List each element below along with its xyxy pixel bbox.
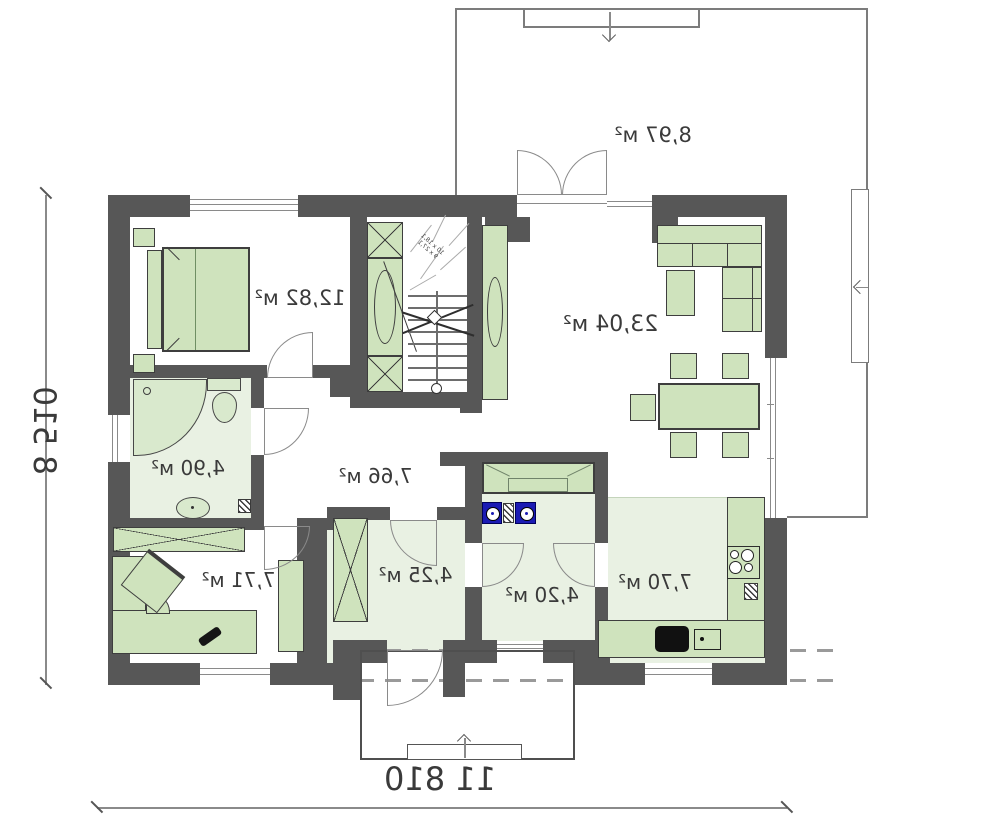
glazing-line [190, 199, 298, 200]
glazing-line [775, 358, 776, 518]
room-label-bathroom: 4,90 м² [138, 456, 238, 480]
room-label-vestibule: 4,25 м² [363, 563, 468, 587]
stair-step [408, 307, 467, 309]
wall-pier-stair [460, 392, 482, 413]
wall-west-upper [108, 195, 130, 415]
toilet-tank [207, 378, 241, 391]
bed-blanket-line [195, 249, 196, 350]
wall-south-3 [575, 663, 645, 685]
room-label-hallway: 7,66 м² [323, 464, 428, 488]
sink-tap-dot [700, 637, 704, 641]
sofa-back-line [752, 268, 753, 331]
glazing-line [200, 668, 270, 669]
glazing-tick [767, 458, 774, 459]
glazing-tick [767, 404, 774, 405]
dining-chair [722, 353, 749, 379]
dim-line-bottom [97, 807, 787, 809]
bed-headboard [147, 250, 162, 349]
wall-pier-bedroom-door [330, 378, 350, 397]
office-wardrobe [113, 527, 245, 552]
wall-south-4 [712, 663, 787, 685]
terrace-edge-left [455, 8, 457, 195]
room-label-living: 23,04 м² [548, 312, 673, 337]
closet-x-top [367, 222, 403, 258]
stair-step [408, 355, 467, 357]
sofa-top [657, 225, 762, 267]
cabinet-door-oval [487, 277, 503, 347]
stair-step [408, 367, 467, 369]
glazing-line [117, 415, 118, 462]
wall-east-upper [765, 195, 787, 358]
glazing-line [190, 204, 298, 205]
glazing-line [497, 648, 543, 649]
glazing-line [190, 210, 298, 211]
stair-rail [436, 291, 438, 390]
nightstand [133, 228, 155, 247]
glazing-line [607, 206, 652, 207]
dining-chair [670, 432, 697, 458]
dim-label-height: 8 510 [22, 395, 62, 475]
stair-step [408, 295, 467, 297]
hob-burner [729, 561, 742, 574]
glazing-line [112, 415, 113, 462]
glazing-line [607, 201, 652, 202]
hob-burner [741, 549, 754, 562]
room-label-kitchen: 7,70 м² [605, 570, 705, 594]
stair-step [408, 379, 467, 381]
dining-chair [670, 353, 697, 379]
arrow-down-icon [602, 28, 616, 42]
glazing-line [645, 674, 712, 675]
sofa-cushion-line [723, 298, 761, 299]
opening-terrace-door [517, 195, 607, 217]
glazing-line [770, 358, 771, 518]
terrace-slider-panel [851, 189, 869, 363]
sofa-cushion-line [658, 243, 761, 244]
hob-burner [744, 563, 753, 572]
kitchen-sink-basin [655, 626, 689, 652]
closet-door-oval [374, 270, 396, 344]
bathtub-drain [143, 387, 151, 395]
dining-chair [722, 432, 749, 458]
washing-machine [515, 502, 536, 524]
washer-dot [525, 512, 528, 515]
dim-label-width: 11 810 [330, 760, 550, 798]
room-label-bedroom: 12,82 м² [240, 286, 360, 310]
glazing-line [497, 644, 543, 645]
vent-duct [503, 503, 514, 523]
sofa-cushion-line [727, 244, 728, 266]
kitchen-sink-drainer [694, 629, 721, 650]
bed [162, 247, 250, 352]
dining-chair [630, 394, 656, 421]
floor-plan: 8 510 11 810 [0, 0, 1000, 822]
room-label-laundry: 4,20 м² [492, 583, 592, 607]
wall-bathroom-east-upper [251, 378, 264, 408]
closet-x-bottom [367, 356, 403, 392]
glazing-line [645, 668, 712, 669]
glazing-line [200, 674, 270, 675]
kitchen-living-boundary [608, 497, 727, 498]
terrace-step [523, 8, 700, 28]
stair-newel [431, 383, 442, 394]
wall-north-2 [298, 195, 517, 217]
wall-laundry-kitchen-upper [595, 452, 608, 543]
hob-burner [730, 550, 739, 559]
door-arc-terrace-right [562, 150, 607, 195]
door-arc-terrace-left [517, 150, 562, 195]
wall-bathroom-east-lower [251, 455, 264, 518]
sink-drain [191, 506, 194, 509]
nightstand [133, 354, 155, 373]
armchair [666, 270, 695, 316]
wall-vestibule-north-right [437, 507, 465, 520]
sofa-right [722, 267, 762, 332]
wall-pier-porch-left [333, 663, 360, 700]
wall-south-1 [108, 663, 200, 685]
bathtub-basin [508, 478, 568, 492]
threshold-line [517, 203, 607, 204]
vent-duct [744, 583, 758, 600]
terrace-edge-bottom [787, 516, 868, 518]
dining-table [658, 383, 760, 430]
vent-duct [238, 499, 251, 513]
room-label-terrace: 8,97 м² [598, 123, 708, 147]
room-label-office: 7,71 м² [186, 568, 291, 592]
wall-east-lower [765, 518, 787, 685]
wall-bedroom-south-right [313, 365, 350, 378]
washing-machine [482, 502, 502, 524]
desk-horizontal [112, 610, 257, 654]
washer-dot [491, 512, 494, 515]
stair-step [408, 343, 467, 345]
sofa-cushion-line [692, 244, 693, 266]
